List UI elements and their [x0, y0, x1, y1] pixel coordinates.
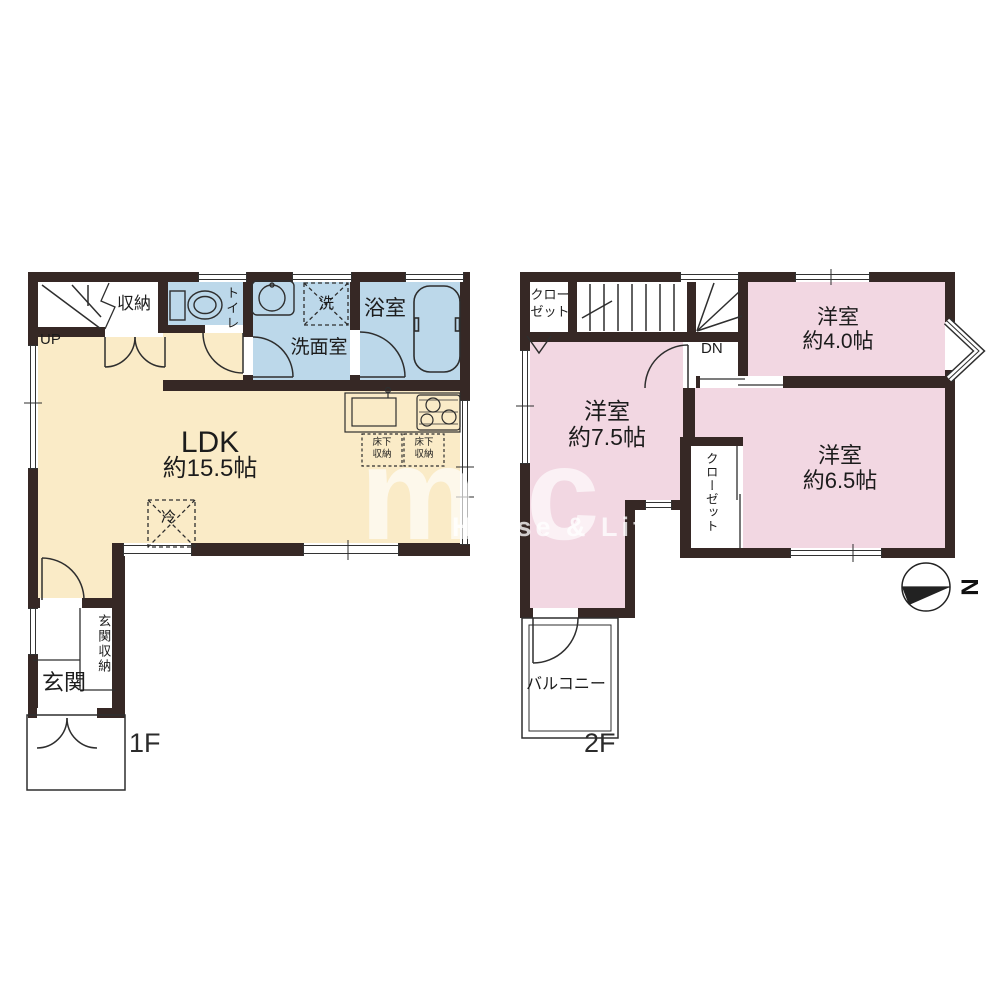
stairs-up-icon	[42, 283, 115, 329]
wall-segment	[738, 282, 748, 376]
room-b-name-label: 洋室	[576, 399, 638, 424]
window-symbol	[790, 548, 882, 558]
floor2-label: 2F	[584, 729, 616, 759]
room-western-75	[530, 510, 635, 608]
bathroom-label: 浴室	[360, 297, 410, 320]
room-c-size-label: 約6.5帖	[793, 469, 887, 493]
stairs-down-icon	[582, 283, 742, 331]
window-symbol	[292, 272, 352, 282]
room-ldk	[38, 543, 112, 598]
ldk-size-label: 約15.5帖	[144, 456, 276, 482]
window-symbol	[198, 272, 247, 282]
door-gap	[40, 598, 82, 608]
north-compass-icon: N	[902, 563, 983, 611]
window-symbol	[795, 272, 870, 282]
door-gap	[533, 608, 578, 618]
underfloor-storage-label: 床下 収納	[405, 437, 443, 462]
wall-segment	[680, 437, 743, 446]
entrance-storage-label: 玄関収納	[96, 614, 110, 692]
toilet-label: トイレ	[224, 286, 238, 340]
balcony-label: バルコニー	[526, 676, 606, 694]
washroom-label: 洗面室	[283, 338, 355, 359]
sliding-door-gap	[735, 446, 743, 548]
room-ldk	[163, 333, 243, 380]
room-washroom	[253, 282, 350, 380]
window-symbol	[28, 345, 38, 469]
storage-label: 収納	[106, 295, 162, 314]
window-symbol	[405, 272, 464, 282]
wall-segment	[687, 282, 696, 332]
door-gap	[243, 337, 253, 375]
room-a-name-label: 洋室	[805, 306, 871, 329]
wall-segment	[945, 370, 955, 558]
closet-65-label: クローゼット	[703, 452, 717, 550]
room-b-size-label: 約7.5帖	[557, 425, 657, 450]
fridge-label: 冷	[161, 510, 176, 527]
wall-segment	[680, 446, 691, 558]
room-c-name-label: 洋室	[810, 444, 870, 468]
floor1-label: 1F	[129, 729, 161, 759]
stairs-down-label: DN	[701, 341, 723, 358]
door-gap	[37, 708, 97, 718]
stairs-up-label: UP	[40, 332, 61, 349]
floor-plan-canvas: N mic House & Life UP 収納 トイレ 洗 洗面室 浴室 LD…	[0, 0, 1000, 1000]
wall-segment	[112, 543, 125, 718]
entrance-label: 玄関	[42, 671, 86, 695]
wall-segment	[163, 380, 470, 391]
window-symbol	[680, 272, 739, 282]
window-symbol	[123, 543, 192, 556]
wall-segment	[945, 272, 955, 322]
underfloor-storage-label: 床下 収納	[363, 437, 401, 462]
closet-label: クロー ゼット	[524, 287, 576, 321]
window-symbol	[520, 350, 530, 464]
room-a-size-label: 約4.0帖	[788, 330, 888, 353]
wall-segment	[683, 388, 695, 437]
wall-segment	[625, 505, 635, 618]
window-symbol	[645, 500, 672, 510]
door-gap	[683, 342, 693, 388]
room-western-65	[695, 388, 945, 437]
window-symbol	[303, 543, 399, 556]
washer-label: 洗	[319, 296, 334, 313]
window-symbol	[460, 400, 470, 545]
compass-north-label: N	[956, 578, 983, 595]
window-symbol	[28, 608, 38, 655]
porch-outline	[27, 715, 125, 790]
sliding-door-gap	[700, 376, 783, 388]
